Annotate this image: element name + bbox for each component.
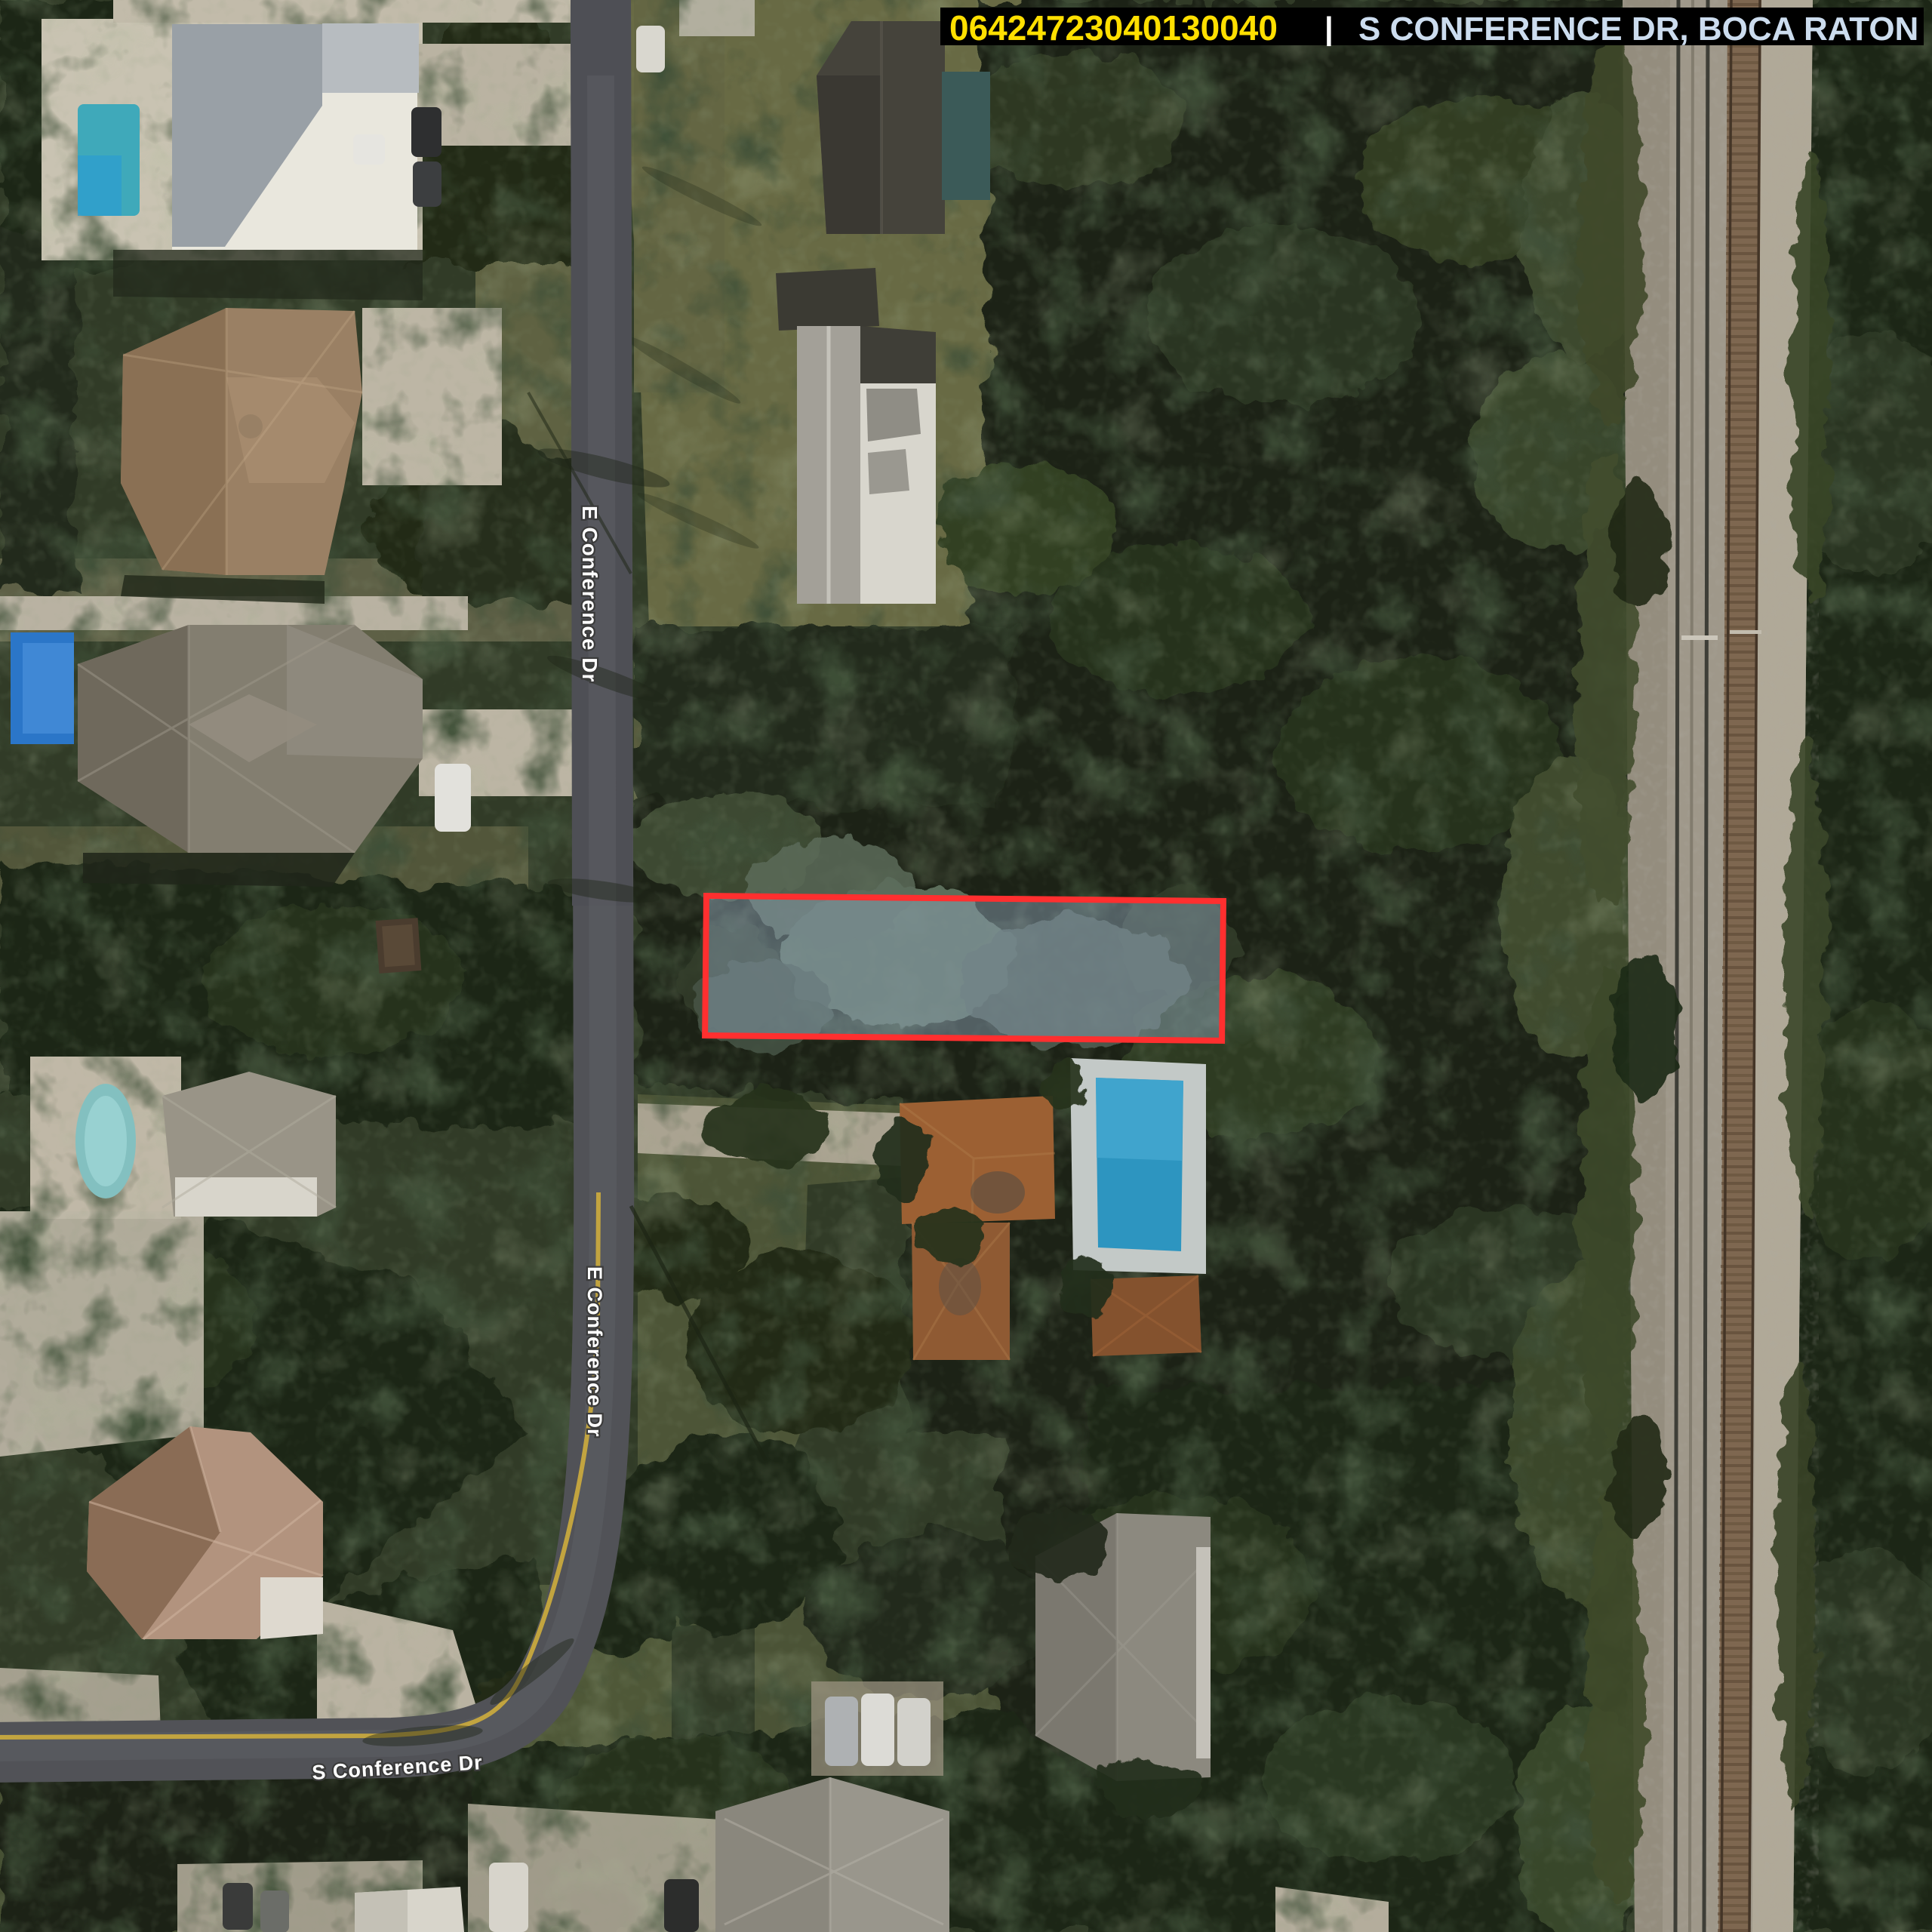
svg-text:06424723040130040: 06424723040130040 bbox=[949, 8, 1278, 48]
svg-text:E Conference Dr: E Conference Dr bbox=[583, 1266, 606, 1438]
svg-text:S CONFERENCE DR, BOCA RATON: S CONFERENCE DR, BOCA RATON bbox=[1358, 11, 1918, 48]
svg-text:E Conference Dr: E Conference Dr bbox=[578, 506, 601, 682]
svg-text:|: | bbox=[1324, 11, 1334, 47]
